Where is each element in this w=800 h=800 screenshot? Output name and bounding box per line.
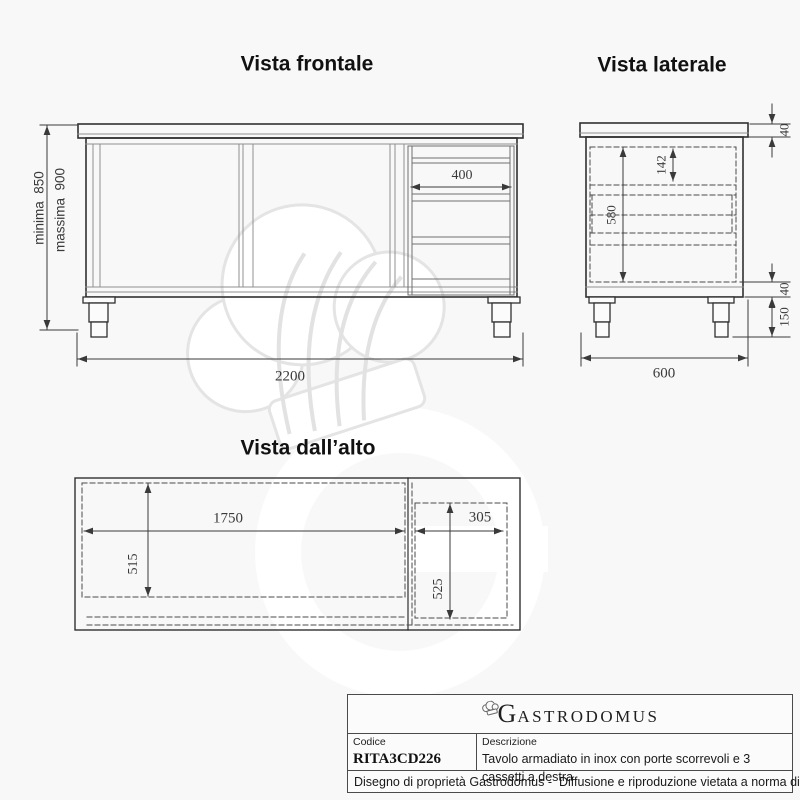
- dim-top-thickness: 40: [778, 124, 791, 137]
- lateral-worktop: [580, 123, 748, 137]
- drawing-svg: [0, 0, 800, 800]
- frontal-view-title: Vista frontale: [241, 54, 374, 75]
- lateral-legs: [589, 297, 734, 337]
- top-view-title: Vista dall’alto: [241, 438, 376, 459]
- title-block-fields-row: Codice RITA3CD226 Descrizione Tavolo arm…: [348, 733, 792, 770]
- lateral-dimensions: [581, 104, 790, 366]
- dim-height-max: massima 900: [53, 168, 67, 252]
- title-block: G ASTRODOMUS Codice RITA3CD226 Descrizio…: [347, 694, 793, 793]
- dim-leg-height: 150: [778, 307, 791, 327]
- brand-logo: G ASTRODOMUS: [481, 699, 660, 729]
- dim-depth: 600: [653, 367, 676, 382]
- dim-drawers-opening-width: 305: [469, 511, 492, 526]
- code-cell: Codice RITA3CD226: [348, 734, 477, 770]
- watermark-g-bar: [405, 526, 548, 572]
- description-label: Descrizione: [482, 736, 787, 748]
- title-block-brand-row: G ASTRODOMUS: [348, 695, 792, 733]
- lateral-view-title: Vista laterale: [597, 55, 726, 76]
- frontal-worktop: [78, 124, 523, 138]
- brand-name: ASTRODOMUS: [517, 707, 659, 727]
- dim-doors-opening-depth: 515: [127, 554, 141, 575]
- dim-front-width: 2200: [275, 370, 305, 385]
- dim-doors-opening-width: 1750: [213, 512, 243, 527]
- lateral-view: [580, 104, 790, 366]
- code-value: RITA3CD226: [353, 751, 441, 767]
- dim-first-drawer-height: 142: [655, 155, 668, 175]
- technical-drawing-page: Vista frontale Vista laterale Vista dall…: [0, 0, 800, 800]
- dim-drawer-width: 400: [452, 169, 473, 183]
- dim-height-min: minima 850: [32, 171, 46, 245]
- description-cell: Descrizione Tavolo armadiato in inox con…: [477, 734, 792, 770]
- dim-drawers-opening-depth: 525: [432, 579, 446, 600]
- dim-body-height: 580: [605, 205, 618, 225]
- dim-plinth-height: 40: [778, 283, 791, 296]
- code-label: Codice: [353, 736, 471, 748]
